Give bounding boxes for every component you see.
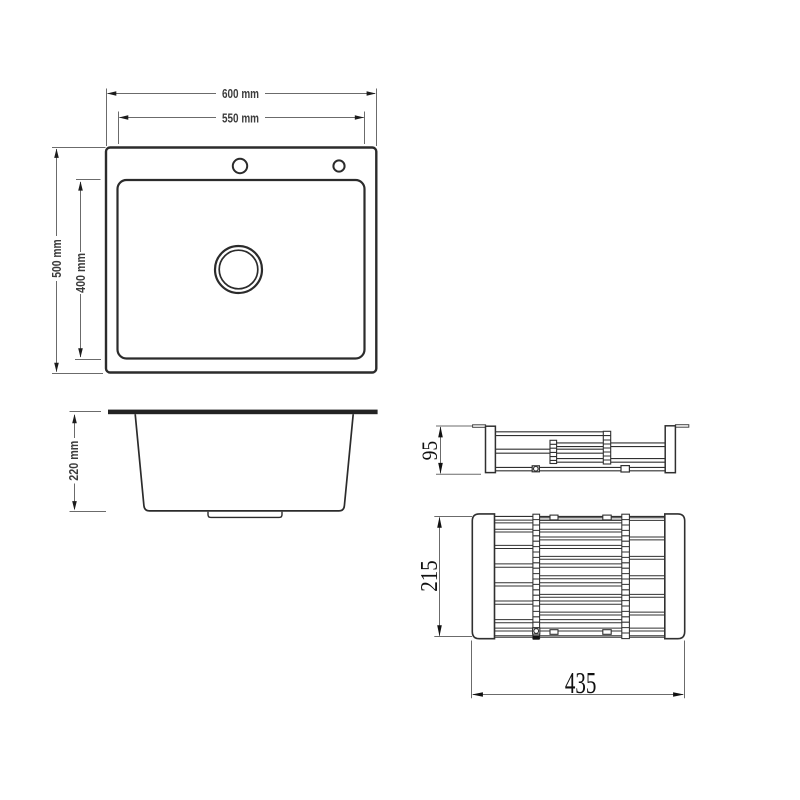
svg-text:500 mm: 500 mm [49, 239, 64, 278]
svg-text:435: 435 [565, 666, 597, 700]
svg-text:400 mm: 400 mm [73, 253, 88, 293]
svg-text:550 mm: 550 mm [222, 110, 259, 125]
svg-text:95: 95 [417, 441, 442, 461]
svg-text:220 mm: 220 mm [66, 441, 81, 481]
svg-text:600 mm: 600 mm [222, 86, 259, 101]
svg-text:215: 215 [417, 560, 443, 592]
